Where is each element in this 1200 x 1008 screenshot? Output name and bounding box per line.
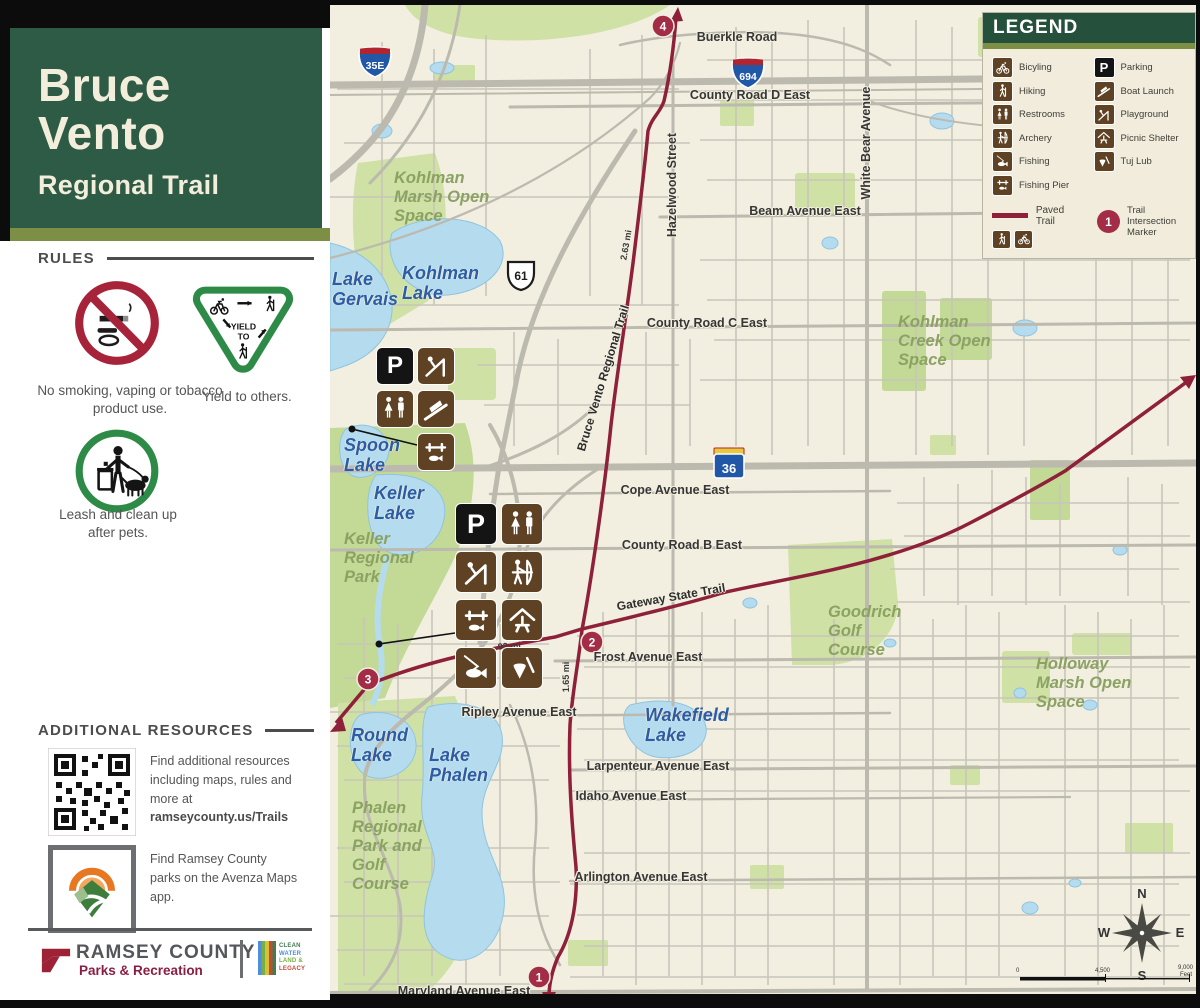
- street-label-hazelwood: Hazelwood Street: [665, 133, 679, 237]
- legend-item-paved-trail: Paved Trail: [992, 205, 1083, 249]
- svg-text:N: N: [1137, 886, 1146, 901]
- qr-code: [48, 748, 136, 836]
- street-label-idaho: Idaho Avenue East: [576, 789, 687, 803]
- legend-header: LEGEND: [983, 13, 1195, 43]
- svg-text:36: 36: [722, 461, 736, 476]
- water-label-keller: Keller Lake: [374, 483, 436, 523]
- trail-subtitle: Regional Trail: [38, 170, 322, 201]
- bicycling-icon: [1014, 230, 1033, 249]
- legend: LEGEND Bicyling Hiking Restrooms: [983, 13, 1195, 258]
- playground-icon: [417, 347, 455, 385]
- paved-trail-swatch: [992, 213, 1028, 218]
- mn36-shield: 36: [714, 448, 744, 478]
- area-label-holloway: Holloway Marsh Open Space: [1036, 655, 1146, 712]
- fishing-icon: [992, 151, 1013, 172]
- qr-text: Find additional resources including maps…: [150, 752, 302, 827]
- marker-4: 4: [652, 15, 674, 37]
- marker-3: 3: [357, 668, 379, 690]
- trail-title-line1: Bruce: [38, 62, 322, 110]
- scale-unit: Feet: [1180, 972, 1192, 979]
- street-label-county-d: County Road D East: [690, 88, 810, 102]
- resources-heading: ADDITIONAL RESOURCES: [38, 722, 253, 739]
- archery-icon: [501, 551, 543, 593]
- compass-rose: N E S W: [1098, 886, 1185, 983]
- legend-item-picnic-shelter: Picnic Shelter: [1094, 129, 1190, 148]
- dept-name: Parks & Recreation: [79, 963, 203, 978]
- i35e-shield: 35E: [359, 47, 391, 77]
- bicycling-icon: [992, 57, 1013, 78]
- scale-mid: 4,500: [1095, 968, 1110, 975]
- legacy-line: CLEAN: [279, 943, 305, 951]
- legacy-line: LAND &: [279, 958, 305, 966]
- legend-item-tuj-lub: Tuj Lub: [1094, 152, 1190, 171]
- sidebar: Bruce Vento Regional Trail RULES: [0, 0, 330, 1000]
- intersection-marker-swatch: 1: [1097, 210, 1120, 233]
- map-area: 35E 694 61 36: [330, 0, 1200, 1008]
- marker-1: 1: [528, 966, 550, 988]
- legend-item-boat-launch: Boat Launch: [1094, 82, 1190, 101]
- parking-icon: P: [1094, 57, 1115, 78]
- svg-text:35E: 35E: [366, 60, 385, 72]
- playground-icon: [455, 551, 497, 593]
- legend-item-intersection-marker: 1 Trail Intersection Marker: [1097, 205, 1189, 239]
- tuj-lub-icon: [501, 647, 543, 689]
- leash-pets-icon: [70, 424, 164, 518]
- restrooms-icon: [501, 503, 543, 545]
- area-label-phalen-park: Phalen Regional Park and Golf Course: [352, 799, 444, 894]
- yield-text: Yield to others.: [192, 388, 302, 406]
- no-smoking-icon: [70, 276, 164, 370]
- scale-start: 0: [1016, 968, 1019, 975]
- archery-icon: [992, 128, 1013, 149]
- legend-item-restrooms: Restrooms: [992, 105, 1088, 124]
- svg-text:E: E: [1176, 925, 1185, 940]
- fishing-pier-icon: [992, 175, 1013, 196]
- legend-item-bicycling: Bicyling: [992, 58, 1088, 77]
- legend-item-archery: Archery: [992, 129, 1088, 148]
- svg-text:W: W: [1098, 925, 1111, 940]
- amenity-cluster-spoon-lake: P: [376, 347, 453, 471]
- street-label-frost: Frost Avenue East: [594, 650, 703, 664]
- resources-heading-line: [265, 729, 314, 732]
- avenza-text: Find Ramsey County parks on the Avenza M…: [150, 850, 300, 906]
- water-label-kohlman: Kohlman Lake: [402, 263, 494, 303]
- mile-label-south: 1.65 mi: [561, 662, 571, 693]
- area-label-keller-park: Keller Regional Park: [344, 530, 424, 587]
- picnic-shelter-icon: [501, 599, 543, 641]
- hiking-icon: [992, 81, 1013, 102]
- logo-divider: [240, 940, 243, 978]
- legend-title: LEGEND: [993, 17, 1078, 39]
- tuj-lub-icon: [1094, 151, 1115, 172]
- svg-text:61: 61: [514, 269, 528, 283]
- svg-text:694: 694: [739, 71, 757, 83]
- water-label-gervais: Lake Gervais: [332, 269, 410, 309]
- legend-item-fishing-pier: Fishing Pier: [992, 176, 1088, 195]
- svg-text:4: 4: [660, 20, 667, 34]
- hiking-icon: [992, 230, 1011, 249]
- yield-sign-word1: YIELD: [231, 322, 256, 332]
- fishing-pier-icon: [417, 433, 455, 471]
- picnic-shelter-icon: [1094, 128, 1115, 149]
- fishing-icon: [455, 647, 497, 689]
- street-label-larpenteur: Larpenteur Avenue East: [587, 759, 730, 773]
- legend-item-playground: Playground: [1094, 105, 1190, 124]
- street-label-white-bear: White Bear Avenue: [859, 87, 873, 200]
- legend-item-hiking: Hiking: [992, 82, 1088, 101]
- yield-to-others-icon: YIELD TO: [190, 281, 296, 377]
- scan-border-top: [0, 0, 330, 28]
- resources-heading-row: ADDITIONAL RESOURCES: [38, 722, 314, 739]
- street-label-cope: Cope Avenue East: [621, 483, 730, 497]
- svg-text:S: S: [1138, 968, 1147, 983]
- legend-item-parking: P Parking: [1094, 58, 1190, 77]
- scale-end: 9,000: [1178, 965, 1193, 972]
- street-label-ripley: Ripley Avenue East: [461, 705, 576, 719]
- boat-launch-icon: [417, 390, 455, 428]
- amenity-cluster-keller-park: P: [455, 503, 541, 689]
- water-label-phalen: Lake Phalen: [429, 745, 501, 785]
- svg-text:1: 1: [536, 971, 543, 985]
- leash-text: Leash and clean up after pets.: [50, 506, 186, 541]
- street-label-maryland: Maryland Avenue East: [398, 984, 530, 998]
- avenza-app-icon: [48, 845, 136, 933]
- footer-divider-line: [28, 928, 312, 931]
- street-label-buerkle: Buerkle Road: [697, 30, 778, 44]
- area-label-kohlman-creek: Kohlman Creek Open Space: [898, 313, 1013, 370]
- legend-item-fishing: Fishing: [992, 152, 1088, 171]
- restrooms-icon: [992, 104, 1013, 125]
- legacy-line: LEGACY: [279, 966, 305, 974]
- legacy-line: WATER: [279, 951, 305, 959]
- svg-text:3: 3: [365, 673, 372, 687]
- water-label-wakefield: Wakefield Lake: [645, 705, 740, 745]
- title-panel: Bruce Vento Regional Trail: [10, 28, 322, 228]
- restrooms-icon: [376, 390, 414, 428]
- trail-arrow-south: [542, 992, 556, 994]
- org-name: RAMSEY COUNTY: [76, 942, 255, 964]
- area-label-kohlman-marsh: Kohlman Marsh Open Space: [394, 169, 499, 226]
- legacy-logo-art: [258, 941, 276, 975]
- qr-text-body: Find additional resources including maps…: [150, 754, 292, 806]
- boat-launch-icon: [1094, 81, 1115, 102]
- rules-heading: RULES: [38, 250, 95, 267]
- qr-link: ramseycounty.us/Trails: [150, 810, 288, 824]
- rules-heading-line: [107, 257, 314, 260]
- legacy-amendment-logo: CLEAN WATER LAND & LEGACY: [258, 941, 305, 975]
- fishing-pier-icon: [455, 599, 497, 641]
- street-label-county-c: County Road C East: [647, 316, 767, 330]
- street-label-arlington: Arlington Avenue East: [574, 870, 707, 884]
- trail-title-line2: Vento: [38, 110, 322, 158]
- ramsey-county-logo: [40, 946, 72, 974]
- svg-text:2: 2: [589, 636, 596, 650]
- rules-heading-row: RULES: [38, 250, 314, 267]
- parking-icon: P: [455, 503, 497, 545]
- street-label-beam: Beam Avenue East: [749, 204, 861, 218]
- street-label-county-b: County Road B East: [622, 538, 742, 552]
- us61-shield: 61: [508, 262, 534, 290]
- yield-sign-word2: TO: [238, 332, 250, 342]
- playground-icon: [1094, 104, 1115, 125]
- water-label-round: Round Lake: [351, 725, 413, 765]
- area-label-goodrich: Goodrich Golf Course: [828, 603, 910, 660]
- parking-icon: P: [376, 347, 414, 385]
- olive-accent-strip: [10, 228, 330, 241]
- trail-map-page: Bruce Vento Regional Trail RULES: [0, 0, 1200, 1008]
- scan-border-left: [0, 0, 10, 241]
